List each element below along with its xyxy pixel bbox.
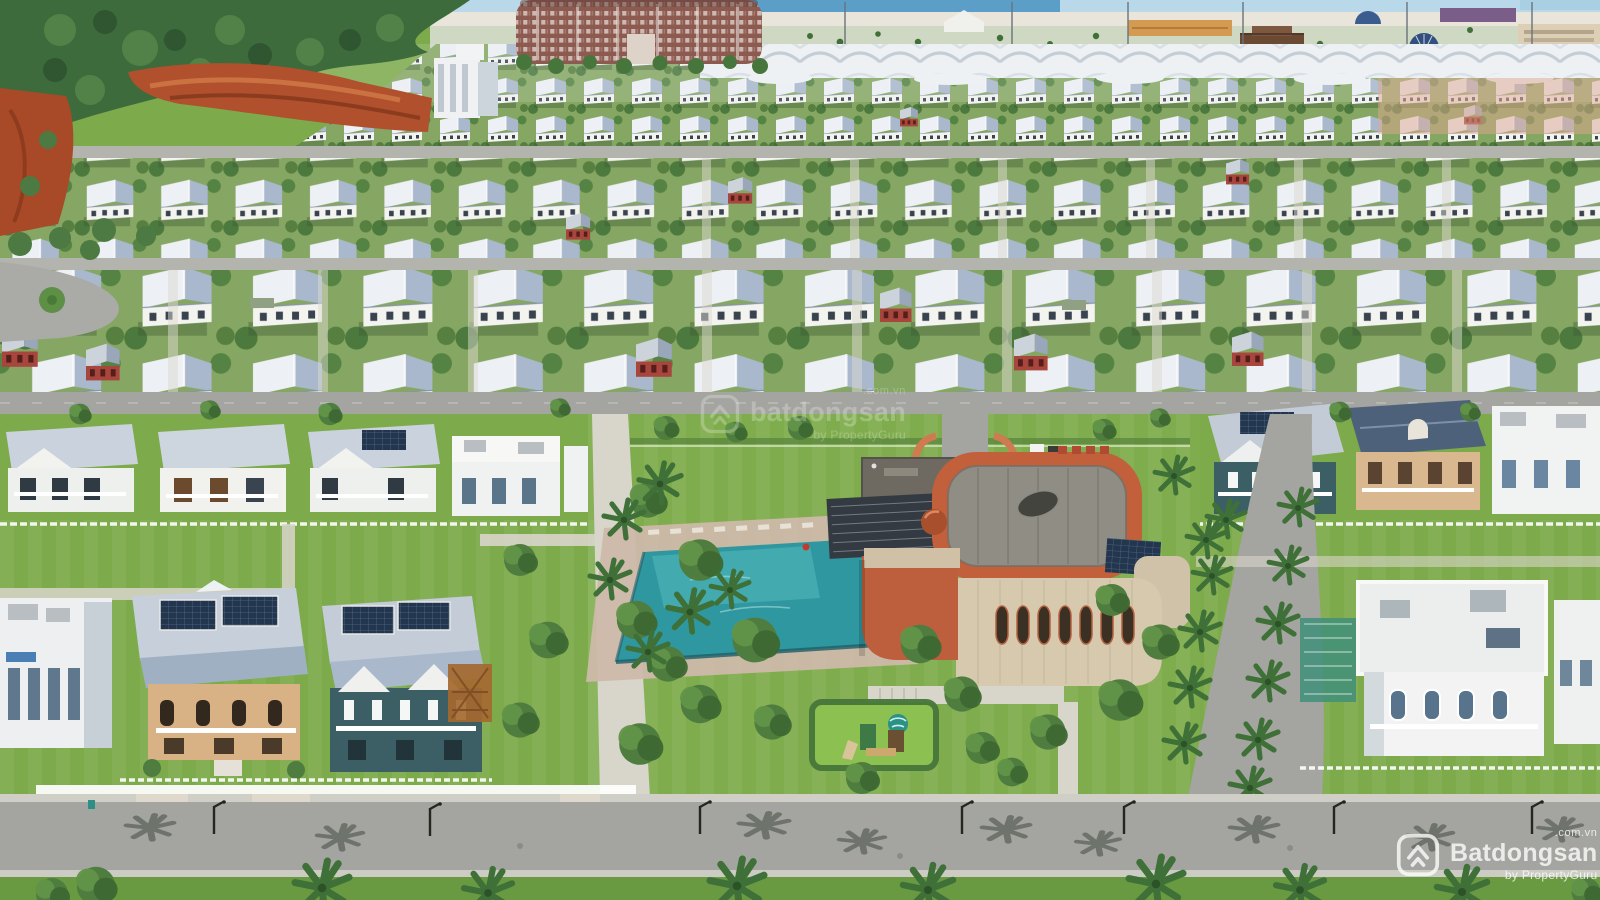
red-umbrella <box>803 544 810 551</box>
sidewalk-top <box>0 794 1600 802</box>
villa-rows-mid <box>0 158 1600 258</box>
wood-pergola <box>448 664 492 722</box>
aerial-photo: .com.vn batdongsan by PropertyGuru .com.… <box>0 0 1600 900</box>
amenity-path-vertical <box>1058 702 1078 797</box>
beach-club-canopies <box>700 44 1600 78</box>
picket-fence <box>36 785 636 794</box>
modern-complex <box>0 598 112 748</box>
teal-villa <box>322 596 492 772</box>
scene-svg <box>0 0 1600 900</box>
playground <box>812 702 936 768</box>
trash-bin <box>88 800 95 809</box>
condo-tower <box>516 0 768 74</box>
street-far <box>0 146 1600 158</box>
street-mid <box>0 258 1600 270</box>
bottom-road <box>0 785 1600 878</box>
road-surface <box>0 802 1600 872</box>
villa-rows-near <box>0 270 1600 392</box>
walkway-branch <box>480 534 610 546</box>
sidewalk-bottom <box>0 870 1600 878</box>
pink-roof-cluster <box>1378 78 1600 134</box>
green-pergola <box>1300 618 1356 702</box>
clubhouse-cylinder <box>921 509 947 535</box>
